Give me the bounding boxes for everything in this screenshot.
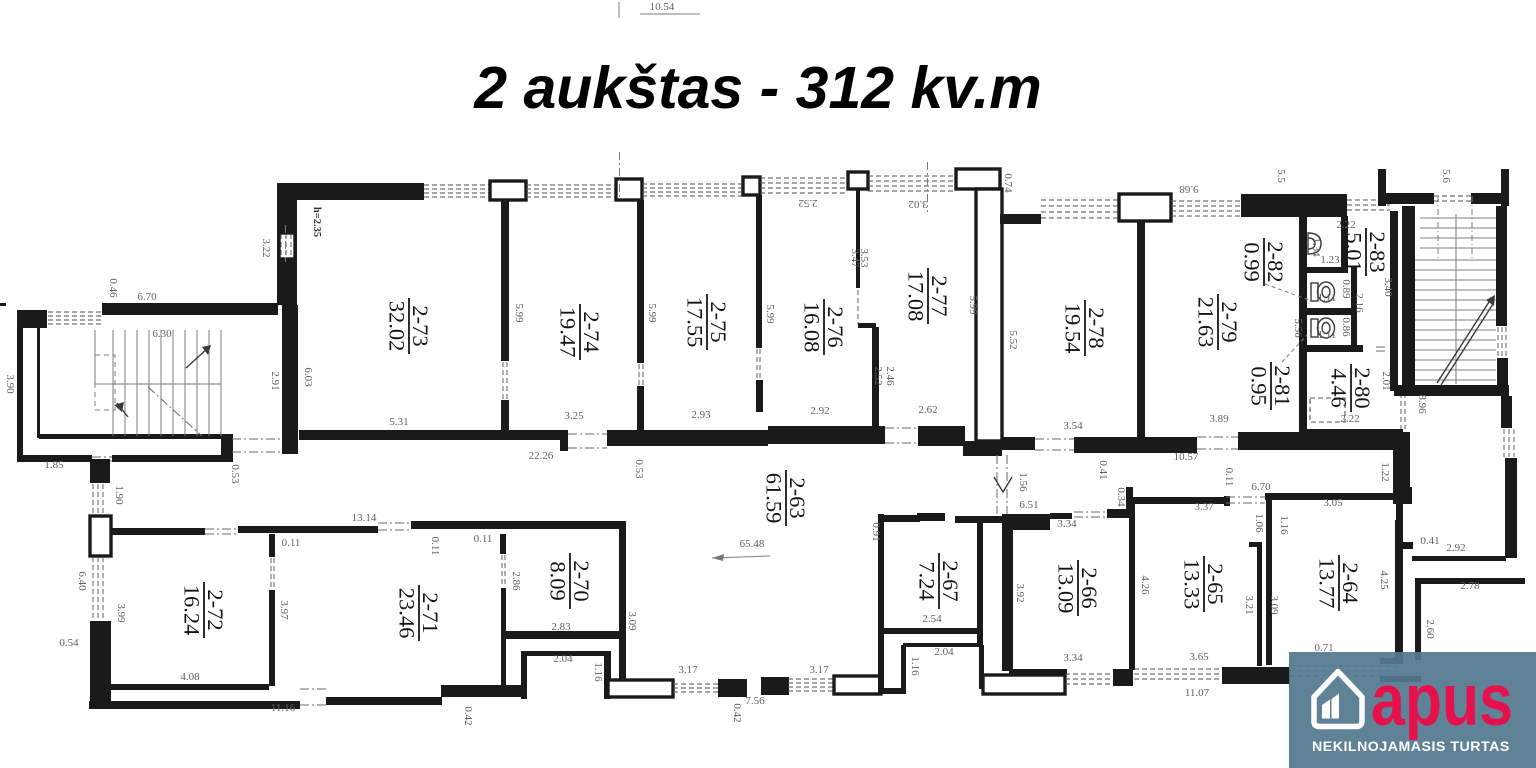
svg-text:1.16: 1.16 [1278,515,1290,535]
svg-text:3.09: 3.09 [626,611,638,631]
svg-text:7.24: 7.24 [915,561,940,600]
svg-text:21.63: 21.63 [1194,297,1219,348]
svg-text:2-67: 2-67 [938,560,963,601]
svg-text:2-77: 2-77 [927,275,952,316]
svg-text:6.51: 6.51 [1019,499,1038,511]
svg-text:19.54: 19.54 [1061,303,1086,354]
svg-text:0.91: 0.91 [870,522,882,541]
svg-text:0.54: 0.54 [59,637,79,649]
svg-text:17.08: 17.08 [904,271,929,322]
svg-text:2-83: 2-83 [1365,231,1390,272]
svg-text:2.22: 2.22 [1340,413,1359,425]
svg-text:0.42: 0.42 [462,706,474,725]
svg-text:2.86: 2.86 [510,571,522,591]
svg-text:0.89: 0.89 [1340,279,1352,299]
svg-text:6.70: 6.70 [1251,481,1271,493]
svg-text:2-81: 2-81 [1270,365,1295,406]
svg-text:2-76: 2-76 [823,306,848,347]
svg-text:3.53: 3.53 [858,248,870,268]
svg-text:3.05: 3.05 [1323,497,1343,509]
svg-text:11.16: 11.16 [271,702,296,714]
svg-text:NEKILNOJAMASIS TURTAS: NEKILNOJAMASIS TURTAS [1312,739,1510,755]
svg-text:6.70: 6.70 [137,291,157,303]
svg-text:3.34: 3.34 [1057,518,1077,530]
svg-text:2.52: 2.52 [798,197,817,209]
svg-text:0.46: 0.46 [107,278,119,298]
svg-text:16.08: 16.08 [800,302,825,353]
svg-text:3.90: 3.90 [4,374,16,394]
svg-text:apus: apus [1371,660,1513,741]
svg-text:2.78: 2.78 [1460,580,1480,592]
svg-text:2.54: 2.54 [922,613,942,625]
svg-text:2-73: 2-73 [408,305,433,346]
svg-text:0.41: 0.41 [1420,535,1439,547]
svg-text:2-79: 2-79 [1217,301,1242,342]
svg-text:2.92: 2.92 [810,405,829,417]
svg-text:8.09: 8.09 [546,561,571,600]
svg-text:1.23: 1.23 [1320,254,1340,266]
svg-text:3.65: 3.65 [1189,651,1209,663]
svg-text:3.89: 3.89 [1209,413,1229,425]
svg-text:6.40: 6.40 [76,571,88,591]
svg-text:0.42: 0.42 [731,703,743,722]
svg-text:2.83: 2.83 [551,621,571,633]
svg-text:0.11: 0.11 [474,533,493,545]
svg-text:13.77: 13.77 [1315,558,1340,609]
svg-text:5.31: 5.31 [389,416,408,428]
svg-text:5.01: 5.01 [1342,232,1367,271]
svg-text:2-71: 2-71 [418,592,443,633]
svg-text:17.55: 17.55 [683,297,708,348]
svg-text:3.21: 3.21 [1243,595,1255,614]
svg-text:0.11: 0.11 [1223,468,1235,487]
svg-text:2-63: 2-63 [785,477,810,518]
svg-text:2.46: 2.46 [884,366,896,386]
svg-text:0.11: 0.11 [282,537,301,549]
svg-text:3.40: 3.40 [1382,277,1394,297]
svg-text:6.03: 6.03 [302,367,314,387]
svg-text:3.25: 3.25 [564,410,584,422]
svg-text:2 aukštas - 312 kv.m: 2 aukštas - 312 kv.m [473,55,1041,121]
svg-text:0.11: 0.11 [429,537,441,556]
svg-text:10.57: 10.57 [1174,451,1199,463]
svg-text:5.56: 5.56 [1292,318,1304,338]
svg-text:1.85: 1.85 [44,459,64,471]
svg-text:0.53: 0.53 [229,464,241,484]
svg-text:2-80: 2-80 [1350,367,1375,408]
svg-text:1.22: 1.22 [1379,462,1391,481]
svg-text:19.47: 19.47 [556,307,581,358]
svg-text:2-65: 2-65 [1203,563,1228,604]
svg-text:2.22: 2.22 [1336,219,1355,231]
svg-text:3.97: 3.97 [278,600,290,620]
svg-text:2-82: 2-82 [1263,241,1288,282]
svg-text:2.62: 2.62 [918,404,937,416]
svg-text:32.02: 32.02 [385,301,410,352]
svg-text:5.99: 5.99 [967,295,979,315]
svg-text:13.33: 13.33 [1180,559,1205,610]
svg-text:2-75: 2-75 [706,301,731,342]
svg-text:0.95: 0.95 [1247,366,1272,405]
svg-text:4.08: 4.08 [180,671,200,683]
svg-text:1.11: 1.11 [1318,292,1337,304]
svg-text:16.24: 16.24 [180,585,205,636]
svg-text:5.6: 5.6 [1440,169,1452,183]
svg-text:4.26: 4.26 [1139,575,1151,595]
svg-text:22.26: 22.26 [529,450,554,462]
svg-text:2.91: 2.91 [269,371,281,390]
svg-text:7.56: 7.56 [745,695,765,707]
svg-text:5.99: 5.99 [646,303,658,323]
svg-text:5.99: 5.99 [513,303,525,323]
svg-text:23.46: 23.46 [395,588,420,639]
svg-text:13.09: 13.09 [1054,563,1079,614]
svg-text:1.06: 1.06 [1253,513,1265,533]
svg-text:3.37: 3.37 [1194,501,1214,513]
svg-text:3.02: 3.02 [908,198,927,210]
svg-text:13.14: 13.14 [352,512,377,524]
svg-text:3.17: 3.17 [678,664,698,676]
svg-text:5.99: 5.99 [764,304,776,324]
svg-text:2.01: 2.01 [1380,371,1392,390]
svg-text:0.41: 0.41 [1097,460,1109,479]
svg-text:4.46: 4.46 [1327,368,1352,407]
svg-text:3.92: 3.92 [1014,583,1026,602]
svg-text:2.04: 2.04 [934,646,954,658]
svg-text:2-78: 2-78 [1084,307,1109,348]
svg-text:2.04: 2.04 [553,653,573,665]
svg-text:2.92: 2.92 [1446,542,1465,554]
svg-text:8.96: 8.96 [1416,394,1428,414]
svg-text:0.53: 0.53 [633,459,645,479]
svg-text:3.17: 3.17 [809,664,829,676]
svg-text:3.99: 3.99 [115,603,127,623]
svg-text:61.59: 61.59 [762,473,787,524]
svg-text:9.68: 9.68 [1179,183,1199,195]
svg-text:1.56: 1.56 [1017,472,1029,492]
svg-text:0.99: 0.99 [1240,242,1265,281]
svg-text:3.54: 3.54 [1063,420,1083,432]
svg-text:5.52: 5.52 [1007,330,1019,349]
svg-text:2-72: 2-72 [203,589,228,630]
svg-text:10.54: 10.54 [650,1,675,13]
svg-text:1.16: 1.16 [592,662,604,682]
svg-text:2.93: 2.93 [691,409,711,421]
svg-text:3.34: 3.34 [1063,652,1083,664]
svg-text:65.48: 65.48 [740,538,765,550]
svg-text:3.22: 3.22 [260,238,272,257]
svg-text:2-74: 2-74 [579,311,604,352]
svg-text:2.52: 2.52 [872,366,884,385]
svg-text:11.07: 11.07 [1185,687,1210,699]
svg-text:1.16: 1.16 [909,656,921,676]
svg-text:2-70: 2-70 [569,560,594,601]
svg-text:1.90: 1.90 [113,485,125,505]
svg-text:1.11: 1.11 [1318,329,1337,341]
svg-text:2.16: 2.16 [1353,293,1365,313]
svg-text:5.5: 5.5 [1275,169,1287,183]
svg-text:0.34: 0.34 [1115,487,1127,507]
svg-text:0.86: 0.86 [1340,317,1352,337]
svg-text:3.09: 3.09 [1268,595,1280,615]
svg-text:2.60: 2.60 [1424,619,1436,639]
svg-text:4.25: 4.25 [1378,570,1390,590]
svg-text:0.74: 0.74 [1002,173,1014,193]
svg-text:2-66: 2-66 [1077,567,1102,608]
svg-text:2-64: 2-64 [1338,562,1363,603]
svg-text:6.30: 6.30 [152,328,172,340]
svg-text:h=2.35: h=2.35 [311,207,322,237]
